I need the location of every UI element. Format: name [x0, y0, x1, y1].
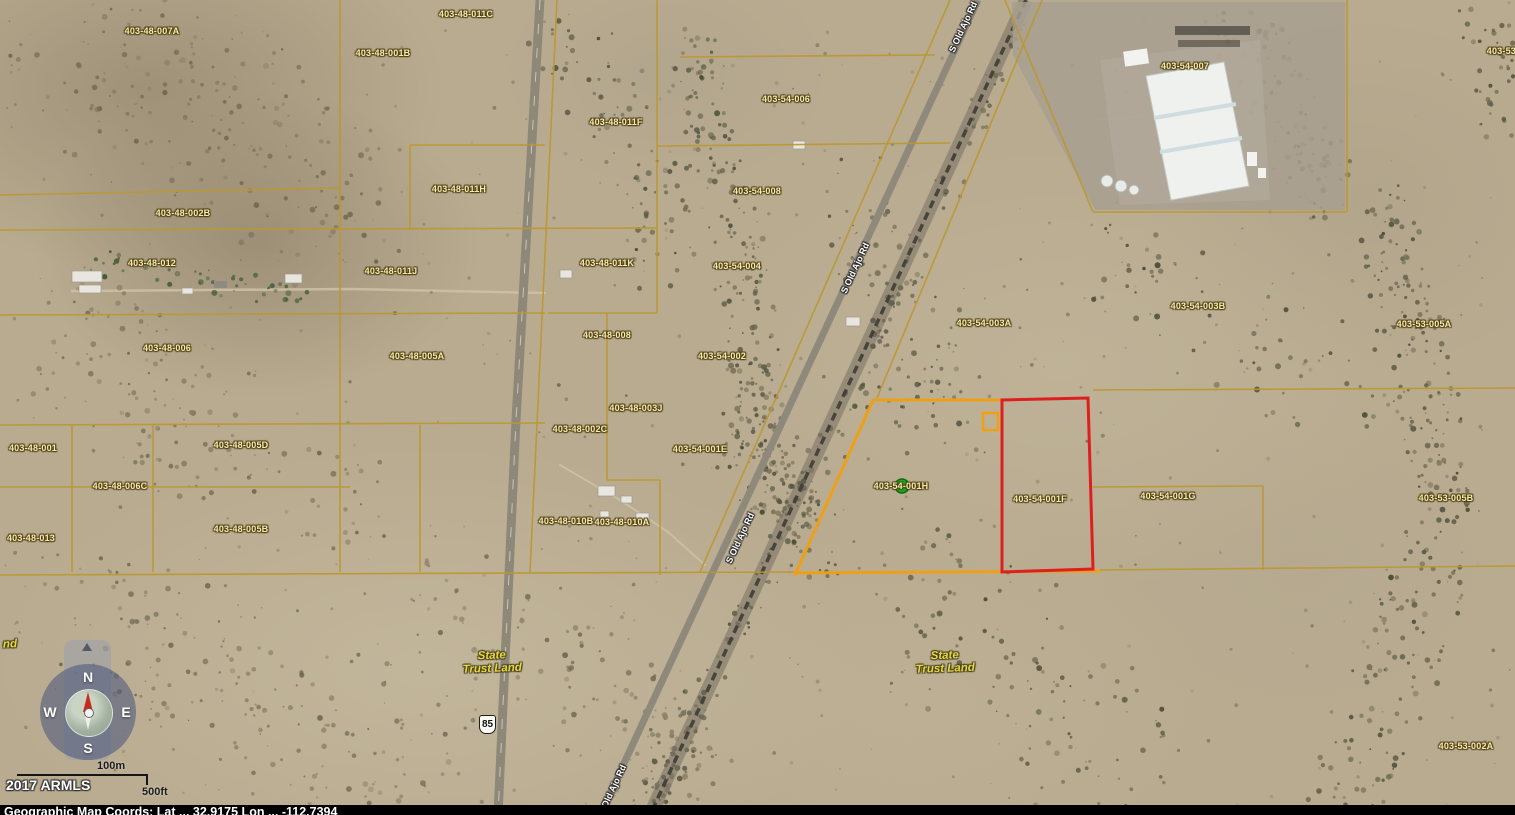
parcel-label: 403-54-001G — [1140, 491, 1195, 501]
compass-west-label: W — [43, 704, 56, 720]
building — [560, 270, 572, 278]
building — [621, 496, 632, 503]
scale-bar — [17, 774, 148, 776]
parcel-label: 403-54-006 — [762, 94, 810, 104]
compass-hub — [84, 708, 94, 718]
parcel-label: 403-48-005B — [214, 524, 269, 534]
road-highway-85 — [498, 0, 540, 815]
parcel-boundary-line — [680, 55, 935, 57]
compass-east-label: E — [121, 704, 130, 720]
parking-row — [1178, 40, 1240, 47]
parcel-label: 403-54-001H — [874, 481, 929, 491]
map-overlay-svg — [0, 0, 1515, 815]
parcel-boundary-line — [0, 188, 340, 195]
geographic-coords-text: Geographic Map Coords: Lat ... 32.9175 L… — [4, 805, 337, 815]
copyright-attribution: 2017 ARMLS — [6, 777, 90, 793]
parcel-label: 403-53-005B — [1419, 493, 1474, 503]
parcel-label: 403-48-011C — [439, 9, 493, 19]
parcel-boundary-line — [1093, 486, 1263, 487]
trail-layer — [72, 116, 1148, 565]
building — [182, 288, 193, 294]
parcel-label: 403-48-011K — [580, 258, 634, 268]
parcel-label: 403-48-005D — [214, 440, 269, 450]
storage-tank — [1101, 175, 1113, 187]
parcel-label: 403-48-006 — [143, 343, 191, 353]
map-viewport[interactable]: 403-48-007A403-48-011C403-48-001B403-48-… — [0, 0, 1515, 815]
parcel-label: 403-48-010A — [595, 517, 650, 527]
parcel-label: 403-48-006C — [93, 481, 148, 491]
scale-imperial-label: 500ft — [142, 786, 168, 798]
parcel-label: 403-48-002C — [553, 424, 608, 434]
parcel-label: 403-54-002 — [698, 351, 746, 361]
parcel-label: 403-54-001F — [1013, 494, 1067, 504]
parcel-label: 403-48-001B — [356, 48, 411, 58]
parcel-boundary-line — [0, 313, 545, 315]
parcel-label: 403-53- — [1487, 46, 1515, 56]
parcel-label: 403-54-004 — [713, 261, 761, 271]
parcel-label: 403-48-005A — [390, 351, 445, 361]
selected-parcel-outline[interactable] — [1002, 398, 1093, 572]
status-bar: Geographic Map Coords: Lat ... 32.9175 L… — [0, 805, 1515, 815]
building — [79, 285, 101, 293]
parcel-boundary-line — [0, 572, 795, 575]
building — [214, 281, 227, 288]
building — [285, 274, 302, 283]
building — [846, 317, 860, 326]
parcel-label: 403-48-010B — [539, 516, 594, 526]
parcel-label: 403-54-003A — [957, 318, 1012, 328]
parcel-label: 403-48-002B — [156, 208, 211, 218]
parcel-label: 403-48-001 — [9, 443, 57, 453]
compass-south-label: S — [83, 740, 92, 756]
parcel-label: 403-48-011H — [432, 184, 486, 194]
parcel-boundary-line — [0, 423, 545, 425]
parcel-boundary-line — [0, 228, 657, 230]
parcel-label: 403-54-001E — [673, 444, 727, 454]
area-label: StateTrust Land — [915, 649, 975, 677]
parcel-label: 403-48-011J — [365, 266, 418, 276]
parcel-label: 403-54-007 — [1161, 61, 1209, 71]
parcel-label: 403-48-013 — [7, 533, 55, 543]
parcel-label: 403-48-011F — [589, 117, 642, 127]
building — [72, 271, 102, 282]
area-label: nd — [3, 638, 18, 652]
scale-metric-label: 100m — [97, 760, 125, 772]
highway-85-shield-icon: 85 — [479, 715, 496, 734]
building — [598, 486, 615, 496]
highlight-square-marker[interactable] — [983, 413, 998, 430]
area-label: StateTrust Land — [462, 649, 522, 677]
parking-row — [1175, 26, 1250, 35]
compass-north-arrow-icon — [82, 643, 92, 651]
parcel-label: 403-48-008 — [583, 330, 631, 340]
parcel-label: 403-48-003J — [609, 403, 662, 413]
road-layer — [498, 0, 1026, 815]
storage-tank — [1129, 185, 1139, 195]
parcel-boundary-line — [877, 0, 1042, 398]
parcel-label: 403-53-005A — [1397, 319, 1452, 329]
storage-tank — [1115, 180, 1127, 192]
compass-north-label: N — [83, 669, 93, 685]
scale-bar-tick — [146, 774, 148, 785]
parcel-boundary-line — [1100, 566, 1515, 570]
parcel-label: 403-53-002A — [1439, 741, 1494, 751]
parcel-label: 403-48-007A — [125, 26, 180, 36]
parcel-label: 403-48-012 — [128, 258, 176, 268]
parcel-label: 403-54-003B — [1171, 301, 1226, 311]
parcel-label: 403-54-008 — [733, 186, 781, 196]
